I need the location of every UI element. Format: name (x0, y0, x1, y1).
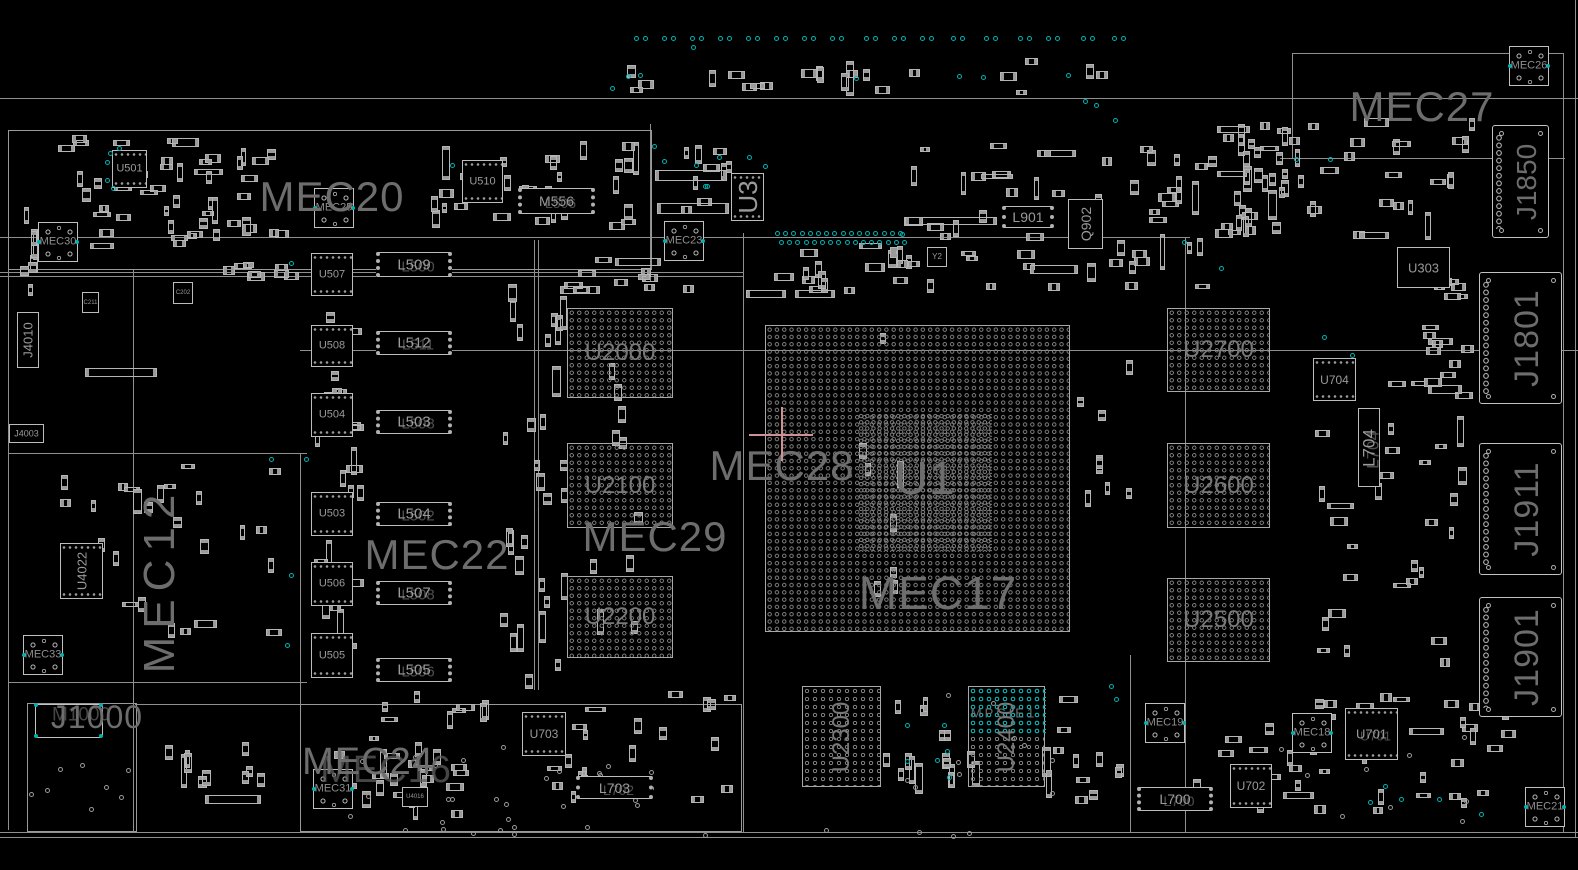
passive-component[interactable] (1451, 759, 1463, 766)
passive-component[interactable] (1440, 658, 1450, 667)
chip-u507[interactable] (311, 253, 353, 296)
passive-component[interactable] (202, 770, 211, 786)
passive-component[interactable] (1314, 805, 1326, 813)
passive-component[interactable] (58, 145, 75, 152)
passive-component[interactable] (545, 334, 550, 347)
passive-component[interactable] (1268, 190, 1277, 220)
passive-component[interactable] (539, 578, 545, 592)
passive-component[interactable] (1126, 360, 1133, 375)
passive-component[interactable] (552, 782, 563, 789)
passive-component[interactable] (1380, 693, 1392, 701)
passive-component[interactable] (369, 736, 379, 741)
passive-component[interactable] (1272, 222, 1281, 234)
passive-component[interactable] (1149, 217, 1167, 223)
passive-component[interactable] (432, 210, 440, 229)
passive-component[interactable] (1192, 181, 1199, 215)
passive-component[interactable] (543, 493, 552, 505)
passive-component[interactable] (1343, 574, 1357, 582)
passive-component[interactable] (990, 143, 1006, 149)
passive-component[interactable] (242, 742, 249, 756)
chip-c211[interactable] (82, 292, 99, 313)
passive-component[interactable] (510, 633, 517, 651)
passive-component[interactable] (539, 611, 546, 643)
passive-component[interactable] (446, 783, 464, 791)
passive-component[interactable] (527, 418, 536, 431)
passive-component[interactable] (1025, 58, 1038, 65)
passive-component[interactable] (1419, 567, 1425, 578)
passive-component[interactable] (334, 751, 345, 759)
chip-u508[interactable] (311, 325, 353, 367)
passive-component[interactable] (1017, 250, 1035, 259)
passive-component[interactable] (1140, 146, 1153, 152)
passive-component[interactable] (1327, 503, 1354, 509)
passive-component[interactable] (981, 174, 1013, 180)
passive-component[interactable] (1487, 745, 1503, 751)
passive-component[interactable] (897, 260, 908, 268)
chip-u505[interactable] (311, 633, 353, 678)
passive-component[interactable] (1347, 544, 1358, 550)
passive-component[interactable] (875, 86, 890, 95)
passive-component[interactable] (200, 539, 209, 554)
passive-component[interactable] (493, 213, 511, 221)
passive-component[interactable] (267, 149, 276, 160)
passive-component[interactable] (585, 707, 607, 712)
passive-component[interactable] (534, 460, 540, 471)
passive-component[interactable] (707, 699, 715, 709)
passive-component[interactable] (1052, 190, 1065, 197)
passive-component[interactable] (82, 188, 90, 202)
chip-y2[interactable] (927, 247, 947, 267)
chip-l509[interactable] (376, 252, 452, 277)
passive-component[interactable] (1089, 790, 1097, 801)
passive-component[interactable] (1167, 187, 1182, 193)
connector-strip[interactable] (560, 286, 600, 294)
passive-component[interactable] (557, 172, 563, 182)
passive-component[interactable] (157, 485, 164, 503)
passive-component[interactable] (451, 810, 463, 817)
passive-component[interactable] (381, 717, 399, 723)
chip-u704[interactable] (1313, 358, 1356, 401)
passive-component[interactable] (1324, 700, 1337, 708)
passive-component[interactable] (622, 142, 635, 151)
passive-component[interactable] (1077, 397, 1084, 407)
passive-component[interactable] (1409, 728, 1444, 735)
passive-component[interactable] (256, 526, 267, 535)
passive-component[interactable] (329, 605, 341, 610)
chip-j4003[interactable] (9, 424, 44, 443)
passive-component[interactable] (1298, 175, 1305, 188)
passive-component[interactable] (695, 145, 702, 163)
passive-component[interactable] (1423, 332, 1436, 339)
passive-component[interactable] (1149, 209, 1160, 215)
passive-component[interactable] (1330, 517, 1348, 526)
passive-component[interactable] (893, 277, 909, 285)
passive-component[interactable] (439, 189, 455, 198)
passive-component[interactable] (1317, 648, 1330, 654)
passive-component[interactable] (24, 207, 29, 224)
chip-c202[interactable] (173, 282, 193, 304)
passive-component[interactable] (1269, 173, 1277, 186)
passive-component[interactable] (1059, 696, 1078, 703)
passive-component[interactable] (173, 240, 185, 248)
passive-component[interactable] (372, 773, 389, 778)
passive-component[interactable] (1388, 423, 1394, 435)
passive-component[interactable] (382, 702, 388, 713)
chip-u506[interactable] (311, 562, 353, 606)
passive-component[interactable] (1449, 527, 1454, 539)
passive-component[interactable] (1115, 767, 1122, 777)
passive-component[interactable] (500, 613, 508, 628)
passive-component[interactable] (1392, 141, 1411, 147)
passive-component[interactable] (199, 218, 208, 229)
passive-component[interactable] (1289, 137, 1300, 145)
passive-component[interactable] (113, 551, 119, 566)
passive-component[interactable] (1364, 118, 1389, 126)
chip-u504[interactable] (311, 393, 353, 437)
passive-component[interactable] (535, 217, 550, 226)
chip-l901[interactable] (1002, 206, 1054, 228)
passive-component[interactable] (1037, 150, 1051, 156)
passive-component[interactable] (1393, 583, 1411, 588)
passive-component[interactable] (1129, 261, 1136, 274)
passive-component[interactable] (1208, 156, 1217, 168)
chip-u4022[interactable] (60, 543, 103, 599)
passive-component[interactable] (986, 283, 997, 290)
passive-component[interactable] (683, 285, 693, 294)
passive-component[interactable] (1034, 177, 1039, 200)
passive-component[interactable] (920, 147, 930, 152)
passive-component[interactable] (1260, 122, 1270, 131)
passive-component[interactable] (1215, 229, 1233, 237)
connector-j1911[interactable] (1479, 443, 1562, 575)
bga-u2300[interactable] (802, 686, 881, 787)
passive-component[interactable] (521, 535, 527, 549)
passive-component[interactable] (1265, 723, 1274, 735)
passive-component[interactable] (1243, 151, 1249, 167)
passive-component[interactable] (1087, 263, 1095, 282)
passive-component[interactable] (144, 502, 153, 513)
passive-component[interactable] (241, 175, 258, 182)
connector-j1901[interactable] (1479, 597, 1562, 717)
mec-pad-mec33[interactable] (23, 635, 63, 675)
passive-component[interactable] (1125, 282, 1138, 289)
passive-component[interactable] (1195, 163, 1207, 170)
passive-component[interactable] (1457, 416, 1465, 447)
passive-component[interactable] (939, 730, 944, 741)
chip-u501[interactable] (112, 150, 147, 188)
passive-component[interactable] (504, 175, 510, 191)
passive-component[interactable] (1328, 609, 1346, 618)
passive-component[interactable] (560, 296, 567, 329)
passive-component[interactable] (213, 229, 220, 241)
passive-component[interactable] (1026, 233, 1044, 242)
passive-component[interactable] (1109, 259, 1123, 267)
passive-component[interactable] (248, 271, 261, 278)
passive-component[interactable] (1425, 212, 1431, 240)
mec-pad-mec18[interactable] (1292, 713, 1332, 753)
passive-component[interactable] (1260, 146, 1278, 151)
passive-component[interactable] (384, 753, 400, 759)
passive-component[interactable] (326, 312, 335, 322)
passive-component[interactable] (800, 249, 819, 257)
passive-component[interactable] (525, 674, 533, 689)
passive-component[interactable] (274, 270, 289, 278)
passive-component[interactable] (1344, 152, 1355, 161)
passive-component[interactable] (1126, 488, 1132, 500)
chip-l512[interactable] (376, 331, 452, 355)
passive-component[interactable] (1218, 750, 1234, 756)
passive-component[interactable] (160, 164, 173, 170)
passive-component[interactable] (1195, 284, 1210, 289)
connector-strip[interactable] (905, 217, 997, 225)
passive-component[interactable] (1086, 64, 1094, 79)
passive-component[interactable] (1102, 157, 1113, 166)
passive-component[interactable] (1422, 325, 1439, 331)
passive-component[interactable] (442, 203, 447, 213)
passive-component[interactable] (550, 156, 557, 170)
passive-component[interactable] (60, 499, 71, 507)
passive-component[interactable] (1315, 430, 1331, 437)
passive-component[interactable] (595, 257, 612, 263)
passive-component[interactable] (1425, 519, 1438, 525)
passive-component[interactable] (1350, 138, 1365, 147)
passive-component[interactable] (1279, 187, 1284, 198)
passive-component[interactable] (1315, 699, 1324, 710)
passive-component[interactable] (194, 620, 218, 628)
passive-component[interactable] (1295, 780, 1301, 791)
passive-component[interactable] (1158, 193, 1176, 202)
passive-component[interactable] (613, 176, 619, 194)
passive-component[interactable] (1448, 172, 1454, 189)
passive-component[interactable] (774, 273, 794, 280)
passive-component[interactable] (122, 602, 139, 607)
connector-strip[interactable] (1030, 265, 1078, 274)
passive-component[interactable] (721, 785, 733, 794)
passive-component[interactable] (1477, 790, 1489, 796)
passive-component[interactable] (196, 491, 202, 505)
chip-l700[interactable] (1137, 787, 1213, 811)
passive-component[interactable] (237, 193, 251, 199)
connector-strip[interactable] (746, 290, 786, 298)
connector-strip[interactable] (795, 290, 835, 298)
passive-component[interactable] (1053, 747, 1064, 753)
passive-component[interactable] (565, 754, 572, 767)
mec-pad-mec26[interactable] (1509, 46, 1549, 86)
passive-component[interactable] (1134, 257, 1150, 266)
passive-component[interactable] (726, 161, 731, 173)
passive-component[interactable] (750, 83, 765, 90)
passive-component[interactable] (480, 703, 487, 721)
passive-component[interactable] (1344, 645, 1350, 657)
passive-component[interactable] (1016, 90, 1027, 95)
passive-component[interactable] (961, 172, 966, 194)
passive-component[interactable] (1223, 134, 1235, 142)
passive-component[interactable] (1096, 71, 1108, 79)
passive-component[interactable] (266, 629, 282, 636)
passive-component[interactable] (1076, 777, 1090, 783)
passive-component[interactable] (408, 760, 419, 767)
passive-component[interactable] (944, 730, 950, 741)
passive-component[interactable] (1379, 199, 1394, 206)
passive-component[interactable] (966, 256, 978, 261)
chip-j4010[interactable] (17, 312, 39, 368)
passive-component[interactable] (1262, 175, 1268, 192)
mec-pad-mec21[interactable] (1525, 787, 1565, 827)
passive-component[interactable] (1393, 202, 1404, 209)
passive-component[interactable] (895, 700, 900, 713)
passive-component[interactable] (1075, 796, 1088, 804)
passive-component[interactable] (269, 468, 281, 475)
passive-component[interactable] (173, 517, 182, 527)
passive-component[interactable] (456, 704, 475, 711)
chip-u510[interactable] (462, 160, 503, 203)
passive-component[interactable] (1217, 126, 1250, 134)
passive-component[interactable] (536, 473, 545, 491)
passive-component[interactable] (1057, 727, 1072, 733)
passive-component[interactable] (590, 559, 597, 574)
chip-m556[interactable] (518, 188, 595, 214)
passive-component[interactable] (1460, 717, 1465, 728)
passive-component[interactable] (668, 691, 684, 698)
passive-component[interactable] (28, 262, 37, 273)
passive-component[interactable] (618, 406, 626, 424)
passive-component[interactable] (1289, 765, 1302, 773)
passive-component[interactable] (1458, 467, 1467, 485)
passive-component[interactable] (242, 771, 248, 784)
passive-component[interactable] (1431, 637, 1447, 645)
passive-component[interactable] (362, 791, 371, 809)
passive-component[interactable] (1000, 72, 1017, 81)
passive-component[interactable] (167, 138, 178, 144)
passive-component[interactable] (168, 623, 174, 638)
passive-component[interactable] (414, 691, 420, 704)
passive-component[interactable] (713, 148, 727, 155)
passive-component[interactable] (940, 233, 950, 240)
passive-component[interactable] (506, 528, 514, 547)
mec-pad-mec23[interactable] (664, 221, 704, 261)
passive-component[interactable] (1174, 154, 1180, 165)
passive-component[interactable] (624, 158, 633, 173)
chip-u4016[interactable] (402, 787, 428, 807)
passive-component[interactable] (508, 284, 517, 302)
passive-component[interactable] (133, 489, 142, 514)
passive-component[interactable] (28, 284, 34, 296)
passive-component[interactable] (841, 73, 849, 91)
passive-component[interactable] (898, 768, 904, 781)
passive-component[interactable] (1449, 360, 1462, 368)
passive-component[interactable] (614, 279, 628, 286)
passive-component[interactable] (1245, 208, 1252, 226)
passive-component[interactable] (517, 624, 523, 652)
passive-component[interactable] (1130, 180, 1139, 195)
passive-component[interactable] (630, 87, 643, 93)
passive-component[interactable] (644, 284, 655, 291)
passive-component[interactable] (1470, 728, 1476, 745)
passive-component[interactable] (615, 159, 624, 172)
connector-strip[interactable] (205, 795, 261, 804)
passive-component[interactable] (243, 262, 254, 268)
passive-component[interactable] (1225, 736, 1242, 742)
passive-component[interactable] (911, 166, 917, 186)
passive-component[interactable] (1282, 169, 1287, 179)
passive-component[interactable] (269, 229, 280, 237)
passive-component[interactable] (168, 220, 174, 234)
passive-component[interactable] (1424, 378, 1442, 387)
chip-u303[interactable] (1397, 247, 1450, 288)
passive-component[interactable] (99, 205, 109, 212)
passive-component[interactable] (268, 558, 274, 573)
passive-component[interactable] (1322, 617, 1328, 630)
passive-component[interactable] (1105, 482, 1111, 495)
passive-component[interactable] (331, 371, 339, 381)
passive-component[interactable] (844, 287, 856, 295)
passive-component[interactable] (1006, 188, 1018, 197)
passive-component[interactable] (1388, 381, 1407, 387)
passive-component[interactable] (1462, 136, 1469, 153)
passive-component[interactable] (1385, 172, 1403, 178)
passive-component[interactable] (1450, 493, 1458, 506)
passive-component[interactable] (1408, 200, 1413, 215)
passive-component[interactable] (1248, 139, 1254, 150)
chip-u702[interactable] (1230, 764, 1272, 808)
mec-pad-mec25[interactable] (314, 188, 354, 228)
passive-component[interactable] (1308, 123, 1319, 130)
connector-strip[interactable] (655, 170, 727, 181)
chip-u703[interactable] (522, 712, 566, 756)
passive-component[interactable] (890, 247, 899, 258)
chip-u503[interactable] (311, 492, 353, 536)
connector-j1000-pad[interactable] (35, 704, 103, 738)
mec-pad-mec19[interactable] (1145, 703, 1185, 743)
connector-strip[interactable] (615, 258, 661, 266)
passive-component[interactable] (1276, 152, 1283, 165)
passive-component[interactable] (621, 219, 636, 225)
passive-component[interactable] (227, 220, 241, 227)
passive-component[interactable] (431, 196, 438, 212)
connector-j1801[interactable] (1479, 272, 1562, 404)
passive-component[interactable] (580, 141, 587, 160)
passive-component[interactable] (99, 229, 115, 237)
chip-u3[interactable] (731, 173, 764, 221)
passive-component[interactable] (91, 500, 97, 513)
passive-component[interactable] (1249, 747, 1268, 752)
connector-strip[interactable] (657, 203, 729, 214)
passive-component[interactable] (1098, 410, 1106, 421)
passive-component[interactable] (1444, 700, 1459, 708)
passive-component[interactable] (1393, 697, 1410, 702)
passive-component[interactable] (237, 156, 243, 170)
passive-component[interactable] (927, 279, 934, 293)
passive-component[interactable] (138, 597, 146, 612)
passive-component[interactable] (923, 697, 929, 712)
passive-component[interactable] (257, 773, 265, 788)
passive-component[interactable] (1420, 772, 1426, 783)
passive-component[interactable] (883, 753, 889, 768)
passive-component[interactable] (1426, 347, 1441, 355)
passive-component[interactable] (1501, 730, 1516, 738)
passive-component[interactable] (943, 758, 951, 768)
passive-component[interactable] (93, 212, 110, 217)
chip-u701[interactable] (1345, 708, 1398, 760)
chip-l505[interactable] (376, 658, 452, 682)
passive-component[interactable] (1282, 127, 1288, 146)
passive-component[interactable] (376, 780, 385, 796)
passive-component[interactable] (94, 178, 102, 190)
passive-component[interactable] (629, 745, 636, 763)
passive-component[interactable] (242, 217, 250, 236)
passive-component[interactable] (1073, 754, 1080, 768)
passive-component[interactable] (1444, 293, 1461, 300)
